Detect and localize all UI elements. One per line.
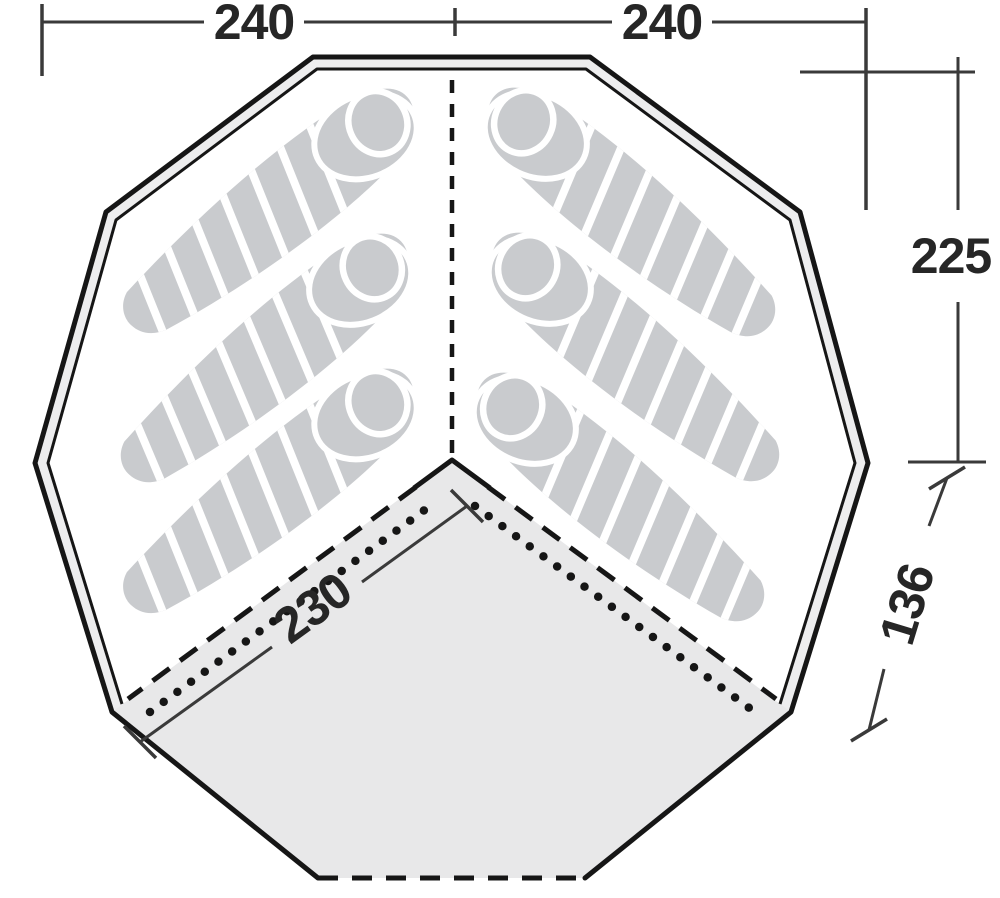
dimension-label-225: 225 [911, 228, 992, 284]
dimension-edge-136: 136 [851, 467, 965, 741]
floorplan-canvas: 240 240 225 136 230 [0, 0, 1000, 898]
dimension-label-240-right: 240 [622, 0, 702, 50]
dimension-label-240-left: 240 [214, 0, 294, 50]
tent-floorplan-diagram: 240 240 225 136 230 [0, 0, 1000, 898]
dimension-label-136: 136 [868, 558, 945, 651]
